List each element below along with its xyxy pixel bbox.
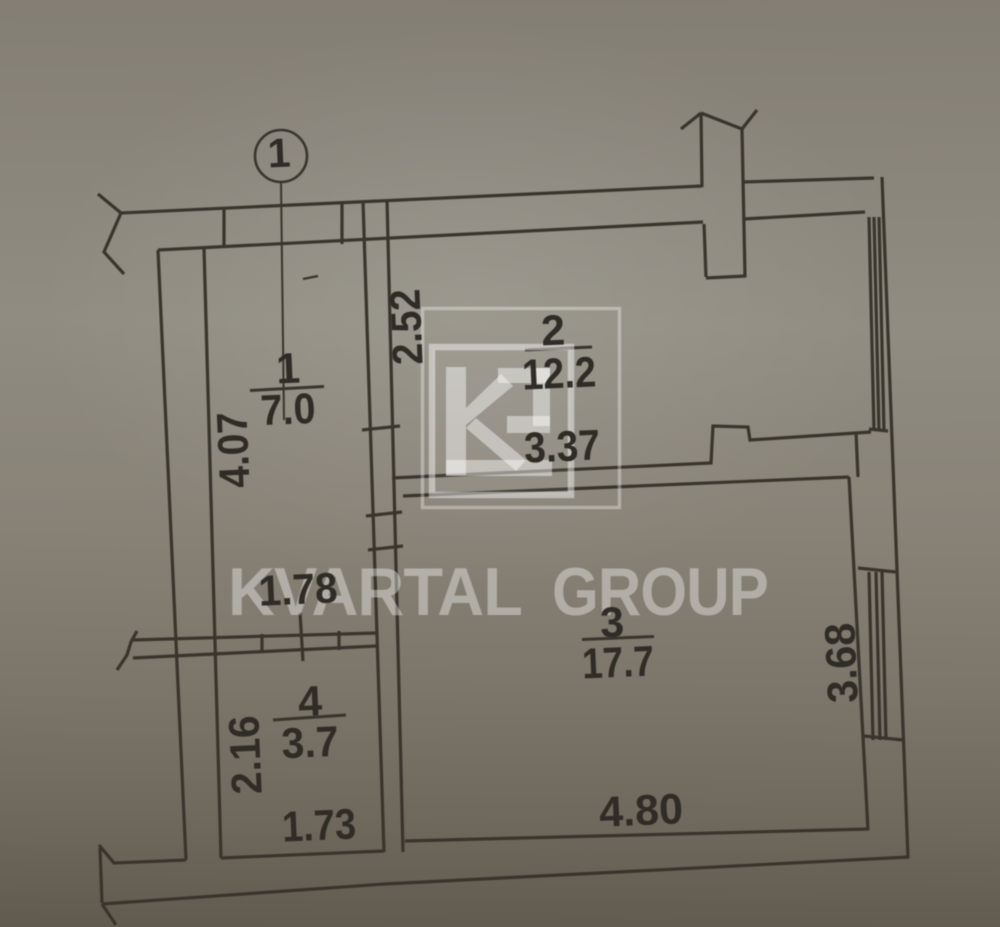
svg-text:17.7: 17.7 (581, 637, 655, 688)
svg-text:4.07: 4.07 (208, 411, 259, 489)
svg-text:2: 2 (540, 307, 566, 356)
svg-text:3.7: 3.7 (281, 718, 340, 768)
svg-text:7.0: 7.0 (260, 385, 317, 435)
svg-text:1: 1 (267, 130, 292, 177)
svg-text:3.37: 3.37 (523, 421, 601, 472)
svg-text:2.52: 2.52 (381, 288, 432, 366)
svg-text:3.68: 3.68 (816, 622, 867, 704)
svg-text:2.16: 2.16 (220, 714, 271, 795)
svg-text:12.2: 12.2 (521, 348, 597, 399)
svg-text:4.80: 4.80 (598, 785, 684, 837)
svg-text:1.78: 1.78 (258, 564, 339, 615)
svg-text:1.73: 1.73 (281, 800, 357, 851)
